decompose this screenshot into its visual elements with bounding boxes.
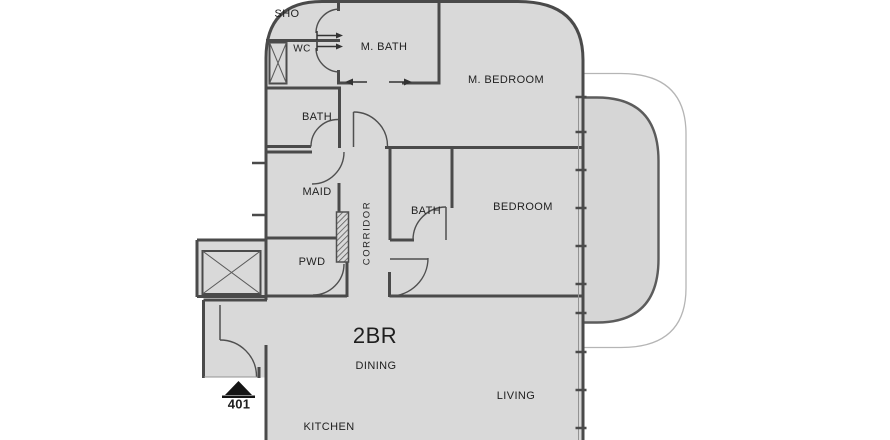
room-label-kitchen: KITCHEN — [303, 421, 354, 433]
entry-marker-icon — [222, 381, 255, 397]
plan-drawing — [0, 0, 890, 440]
room-label-dining: DINING — [356, 360, 397, 372]
room-label-corridor: CORRIDOR — [362, 201, 373, 266]
duct-hatch — [337, 212, 349, 262]
room-label-bedroom: BEDROOM — [493, 201, 553, 213]
room-label-wc: WC — [293, 44, 310, 55]
room-label-m-bedroom: M. BEDROOM — [468, 74, 544, 86]
room-label-maid: MAID — [302, 186, 331, 198]
balcony — [583, 74, 686, 348]
room-label-pwd: PWD — [299, 256, 326, 268]
unit-type-label: 2BR — [353, 323, 397, 349]
room-label-bath-upper: BATH — [302, 111, 332, 123]
room-label-m-bath: M. BATH — [361, 41, 408, 53]
room-label-living: LIVING — [497, 390, 535, 402]
room-label-bath-inner: BATH — [411, 205, 441, 217]
unit-number-label: 401 — [228, 397, 251, 412]
room-label-sho: SHO — [274, 8, 299, 20]
floor-plan: SHO WC M. BATH M. BEDROOM BATH MAID CORR… — [0, 0, 890, 440]
